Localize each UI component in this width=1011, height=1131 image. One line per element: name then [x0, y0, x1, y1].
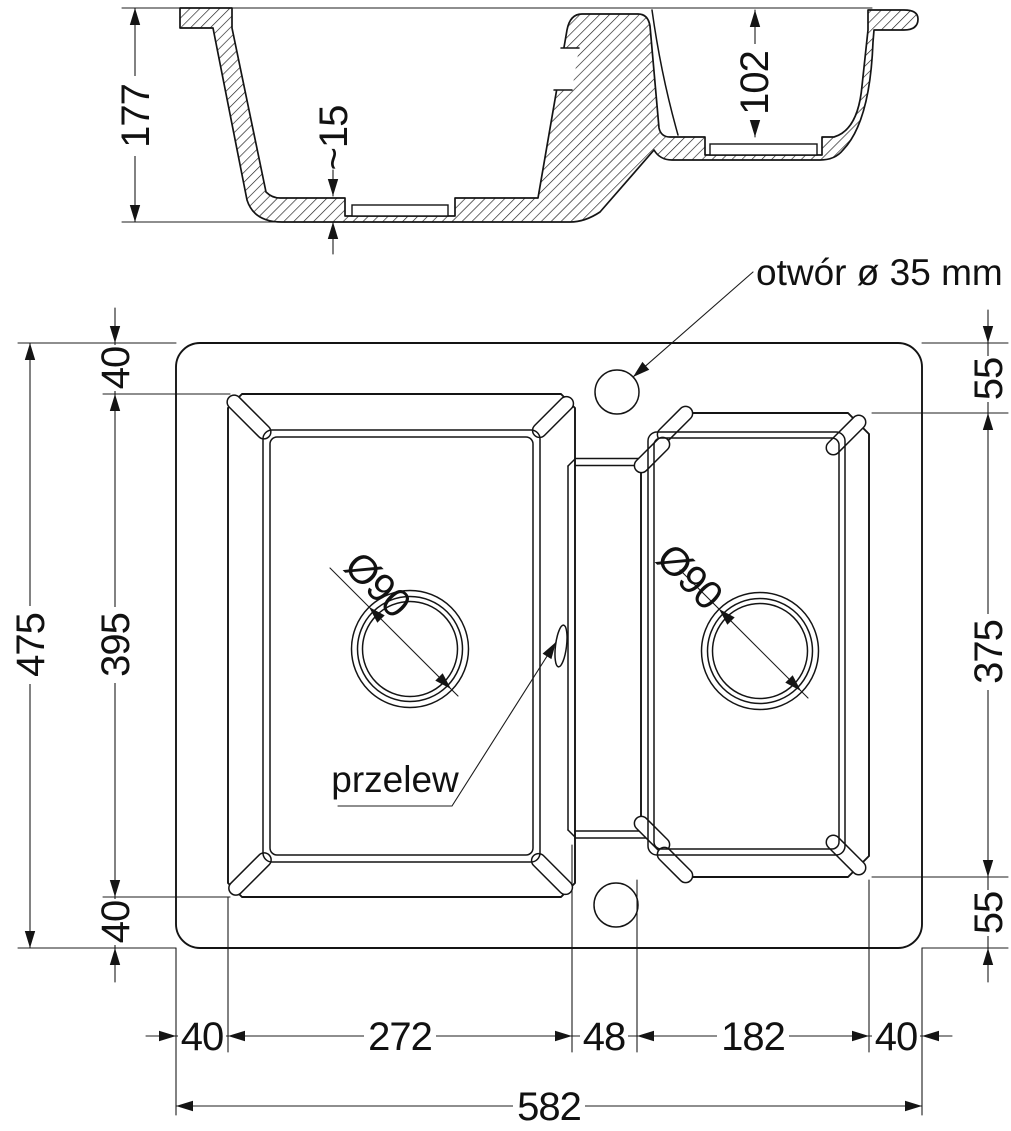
- dim-40-top-label: 40: [94, 347, 138, 390]
- dim-395-label: 395: [94, 613, 138, 677]
- bottom-dimensions: 40 272 48 182 40 582: [146, 1015, 952, 1129]
- dim-55-bottom-label: 55: [967, 892, 1011, 935]
- arrowhead: [328, 179, 338, 196]
- arrowhead: [750, 10, 760, 27]
- chamfer-band: [530, 394, 577, 441]
- left-dimensions: 475 40 395 40: [9, 308, 138, 982]
- chamfer-band: [631, 434, 672, 475]
- tap-hole-note: otwór ø 35 mm: [756, 252, 1003, 293]
- section-profile: [180, 8, 918, 222]
- tap-hole-annotation: otwór ø 35 mm: [630, 252, 1003, 381]
- right-drain-hole-outer: [702, 593, 819, 710]
- dim-375-label: 375: [967, 620, 1011, 684]
- right-drain-label: Ø90: [648, 536, 730, 618]
- chamfer-band: [224, 392, 273, 441]
- arrowhead: [130, 8, 140, 25]
- chamfer-band: [654, 844, 695, 885]
- left-drain-hole-outer: [352, 591, 469, 708]
- overflow-label: przelew: [331, 759, 459, 800]
- left-bowl-outer-edge: [228, 394, 575, 897]
- left-bowl: [224, 392, 576, 898]
- bottom-tap-hole: [594, 883, 638, 927]
- chamfer-band: [529, 851, 576, 898]
- dim-15-label: ~15: [312, 106, 356, 171]
- sink-outline: [176, 343, 922, 948]
- left-drain-plate: [352, 205, 448, 216]
- right-bowl-rim-line-outer: [648, 432, 845, 855]
- sink-technical-drawing: 177 ~15 102: [0, 0, 1011, 1131]
- extension-lines: [18, 343, 1008, 1115]
- dim-55-top-label: 55: [967, 358, 1011, 401]
- chamfer-band: [226, 850, 274, 898]
- right-dimensions: 55 375 55: [967, 310, 1011, 982]
- left-drain-dimension: Ø90: [330, 544, 458, 696]
- drawing-canvas: 177 ~15 102: [0, 0, 1011, 1131]
- right-drain-plate: [710, 144, 817, 155]
- dim-177-label: 177: [114, 84, 158, 148]
- arrowhead: [543, 639, 561, 659]
- top-tap-hole: [595, 370, 639, 414]
- dim-40-bottom-label: 40: [94, 901, 138, 944]
- right-bowl: [631, 403, 869, 885]
- dim-582-label: 582: [517, 1085, 581, 1129]
- arrowhead: [130, 205, 140, 222]
- dim-102-label: 102: [733, 51, 777, 115]
- left-drain-label: Ø90: [336, 544, 418, 626]
- right-drain-dimension: Ø90: [648, 536, 808, 698]
- arrowhead: [328, 222, 338, 239]
- plan-view: Ø90 Ø90 otwór ø 35 mm przelew 475: [9, 252, 1011, 1129]
- dim-475-label: 475: [9, 613, 53, 677]
- section-view: 177 ~15 102: [113, 8, 918, 254]
- dim-40-left-label: 40: [181, 1015, 224, 1059]
- chamfer-band: [823, 412, 868, 457]
- dim-182-label: 182: [721, 1015, 785, 1059]
- divider-channel: [568, 459, 648, 839]
- dim-48-label: 48: [583, 1015, 626, 1059]
- arrowhead: [750, 120, 760, 137]
- overflow-slot: [553, 624, 569, 667]
- dim-272-label: 272: [368, 1015, 432, 1059]
- dim-40-right-label: 40: [875, 1015, 918, 1059]
